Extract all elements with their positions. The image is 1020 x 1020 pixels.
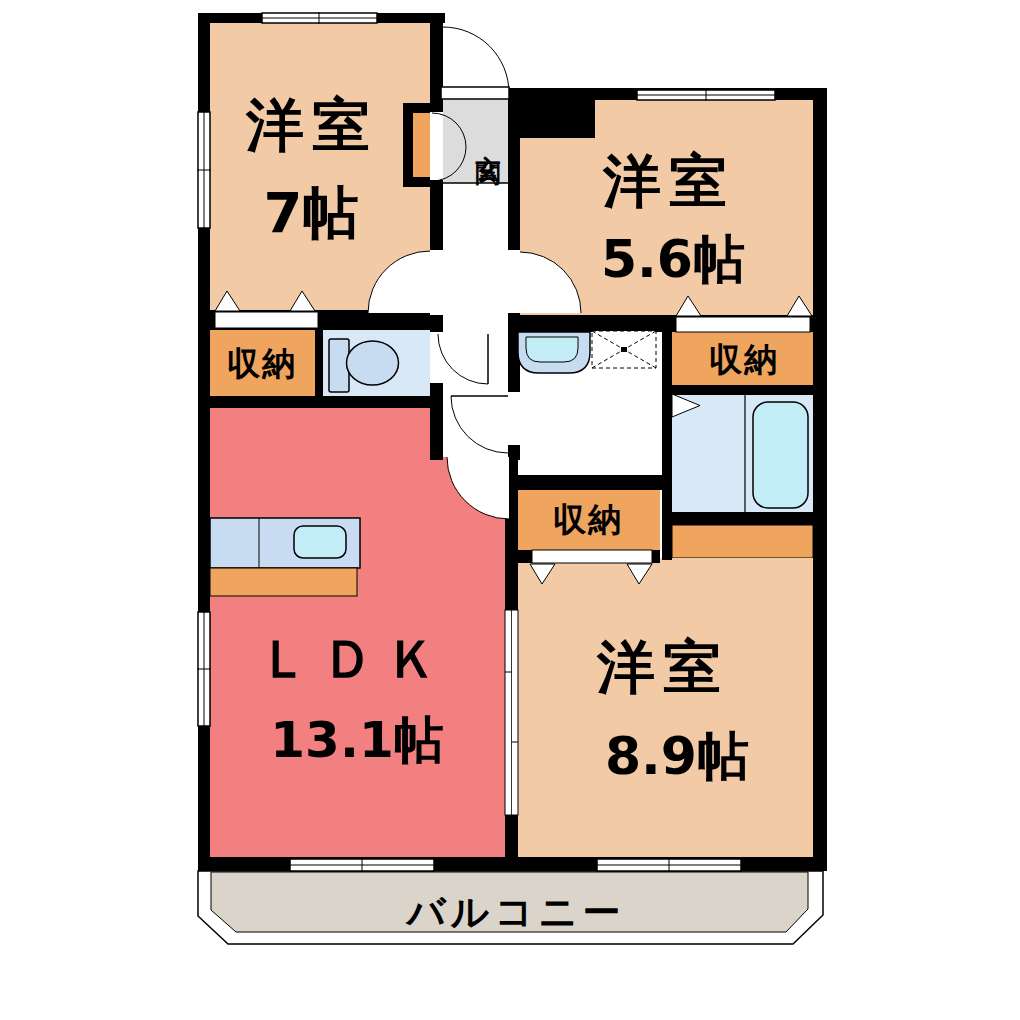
closet-strip-fill bbox=[672, 525, 813, 558]
room-size-western-8-9: 8.9帖 bbox=[605, 730, 749, 782]
closet-opening bbox=[532, 550, 652, 563]
floor-plan-drawing bbox=[0, 0, 1020, 1020]
storage-label: 収納 bbox=[553, 503, 623, 536]
kitchen-counter bbox=[210, 518, 360, 596]
floor-plan: 洋室 7帖 洋室 5.6帖 ＬＤＫ 13.1帖 洋室 8.9帖 収納 収納 収納… bbox=[0, 0, 1020, 1020]
wall-segment bbox=[508, 445, 520, 460]
bathtub bbox=[745, 395, 808, 512]
wall-segment bbox=[662, 385, 813, 395]
entrance-label: 玄関 bbox=[476, 135, 501, 147]
room-size-western-7: 7帖 bbox=[264, 185, 359, 241]
storage-label: 収納 bbox=[227, 347, 297, 380]
room-western-8-9-fill bbox=[518, 558, 813, 861]
door-gap-western-5-6 bbox=[508, 250, 520, 313]
balcony-label: バルコニー bbox=[407, 893, 626, 931]
window bbox=[197, 112, 211, 228]
washing-machine-pan bbox=[592, 331, 656, 368]
wall-segment bbox=[813, 88, 827, 871]
door-swing-washroom bbox=[451, 396, 508, 453]
wall-segment bbox=[198, 396, 443, 408]
window bbox=[262, 12, 377, 24]
closet-opening bbox=[215, 312, 318, 328]
door-swing-toilet bbox=[438, 334, 488, 384]
door-gap-western-7 bbox=[430, 250, 443, 315]
room-label-western-7: 洋室 bbox=[246, 96, 378, 154]
shoe-cabinet bbox=[413, 113, 430, 177]
closet-opening bbox=[676, 317, 810, 332]
pipe-space-block bbox=[508, 100, 595, 138]
wall-segment bbox=[430, 187, 443, 250]
wall-segment bbox=[430, 383, 443, 460]
window bbox=[597, 858, 741, 872]
room-label-western-8-9: 洋室 bbox=[597, 638, 729, 696]
wall-segment bbox=[508, 88, 520, 250]
wall-segment bbox=[662, 512, 827, 525]
storage-label: 収納 bbox=[709, 343, 779, 376]
kitchen-sink bbox=[294, 526, 346, 558]
room-label-western-5-6: 洋室 bbox=[603, 152, 735, 210]
room-size-ldk: 13.1帖 bbox=[270, 715, 443, 765]
window bbox=[637, 89, 775, 101]
door-gap-washroom bbox=[508, 392, 520, 445]
sliding-door-ldk-8-9 bbox=[505, 610, 518, 815]
window bbox=[197, 612, 211, 726]
wall-segment bbox=[505, 475, 672, 490]
kitchen-base bbox=[210, 568, 357, 596]
front-door-panel bbox=[441, 87, 509, 99]
room-size-western-5-6: 5.6帖 bbox=[601, 233, 745, 285]
shoe-cabinet-opening bbox=[430, 112, 443, 180]
room-label-ldk: ＬＤＫ bbox=[258, 633, 450, 685]
window bbox=[290, 858, 434, 872]
wall-segment bbox=[315, 330, 323, 396]
washbasin bbox=[518, 332, 590, 373]
front-door-swing-arc bbox=[443, 27, 509, 93]
